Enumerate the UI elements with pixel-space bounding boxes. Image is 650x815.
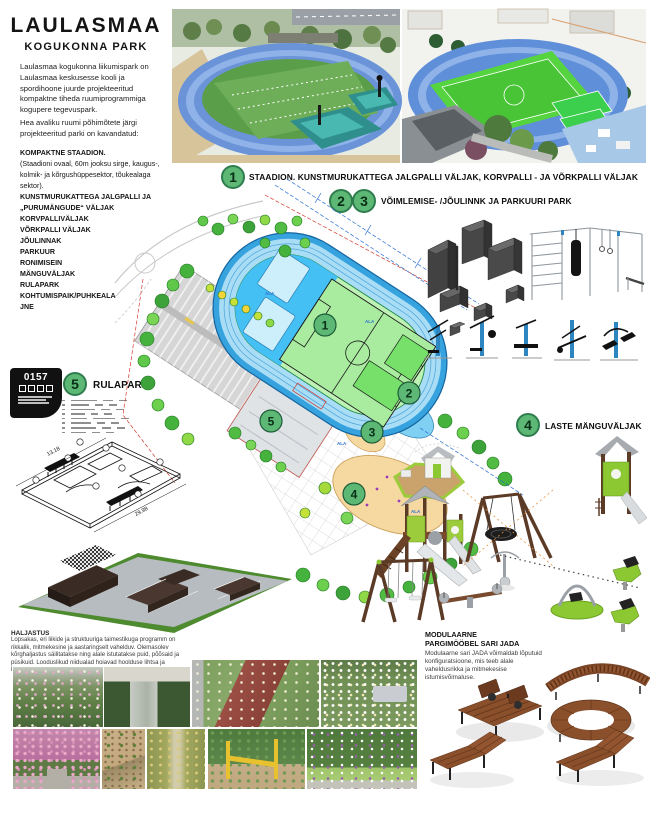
svg-text:5: 5 bbox=[268, 415, 275, 429]
furniture-renders bbox=[420, 648, 650, 800]
poster-board: LAULASMAA KOGUKONNA PARK Laulasmaa koguk… bbox=[0, 0, 650, 815]
jungle-gym-frame bbox=[530, 228, 644, 300]
skatepark-drawing: 13,18 29,98 bbox=[10, 428, 192, 536]
photo-bench-daisies bbox=[321, 660, 417, 727]
play-tower bbox=[595, 436, 647, 524]
platform-bench bbox=[456, 679, 544, 742]
intro-paragraph-2: Hea avaliku ruumi põhimõtete järgi proje… bbox=[20, 118, 164, 140]
svg-text:2: 2 bbox=[406, 387, 413, 401]
spring-riders bbox=[611, 556, 641, 632]
photo-hammock-playground bbox=[208, 729, 305, 789]
stamp-fineprint bbox=[18, 395, 54, 405]
photo-tree-allee bbox=[104, 667, 190, 727]
svg-text:ALA: ALA bbox=[265, 291, 275, 296]
svg-text:ALA: ALA bbox=[365, 319, 375, 324]
photo-autumn-path bbox=[147, 729, 205, 789]
photo-gravel-garden bbox=[102, 729, 145, 789]
gym-equipment-renders bbox=[422, 208, 650, 398]
outdoor-gym-machines bbox=[424, 316, 638, 360]
seesaw bbox=[439, 583, 502, 608]
stadium-render-aerial bbox=[402, 9, 646, 163]
path-block bbox=[47, 769, 67, 789]
planting-heading: HALJASTUS bbox=[11, 630, 191, 637]
badge-number: 5 bbox=[71, 376, 79, 392]
carousel bbox=[551, 586, 603, 619]
square-icon bbox=[28, 385, 35, 392]
intro-paragraph-1: Laulasmaa kogukonna liikumispark on Laul… bbox=[20, 62, 164, 116]
nest-seat bbox=[485, 527, 517, 541]
skate-dim-bottom: 29,98 bbox=[134, 506, 149, 518]
punching-bag bbox=[571, 240, 581, 276]
furniture-heading-2: PARGIMÖÖBEL SARI JADA bbox=[425, 639, 543, 648]
heading-stadium: STAADION. KUNSTMURUKATTEGA JALGPALLI VÄL… bbox=[249, 172, 641, 182]
square-icon bbox=[19, 385, 26, 392]
photo-red-path-planting bbox=[192, 660, 319, 727]
furniture-heading-1: MODULAARNE bbox=[425, 630, 543, 639]
heading-playground: LASTE MÄNGUVÄLJAK bbox=[545, 421, 650, 431]
hammock bbox=[228, 756, 278, 768]
heading-badge-5: 5 bbox=[63, 372, 87, 396]
entry-code: 0157 bbox=[24, 372, 48, 383]
square-icon bbox=[37, 385, 44, 392]
skatepark-render bbox=[8, 535, 294, 631]
square-icon bbox=[46, 385, 53, 392]
page-title: LAULASMAA bbox=[8, 14, 164, 38]
svg-text:1: 1 bbox=[322, 319, 329, 333]
stamp-icons bbox=[19, 385, 53, 392]
parkour-blocks bbox=[428, 220, 524, 336]
hammock-post bbox=[274, 739, 278, 779]
stadium-render-perspective bbox=[172, 9, 400, 163]
playground-renders bbox=[355, 432, 650, 637]
entry-stamp: 0157 bbox=[10, 368, 62, 418]
photo-cherry-blossom-path bbox=[13, 729, 100, 789]
curved-bench bbox=[548, 668, 648, 700]
photo-shrub-border bbox=[307, 729, 417, 789]
swing-set bbox=[363, 558, 443, 623]
photo-wildflower-meadow bbox=[13, 667, 103, 727]
page-subtitle: KOGUKONNA PARK bbox=[8, 41, 164, 53]
lounger-bench-left bbox=[430, 732, 514, 788]
feature-item: KOMPAKTNE STAADION. bbox=[20, 148, 170, 159]
skate-dim-left: 13,18 bbox=[46, 446, 61, 458]
svg-text:ALA: ALA bbox=[337, 441, 347, 446]
bench-block bbox=[373, 686, 407, 702]
